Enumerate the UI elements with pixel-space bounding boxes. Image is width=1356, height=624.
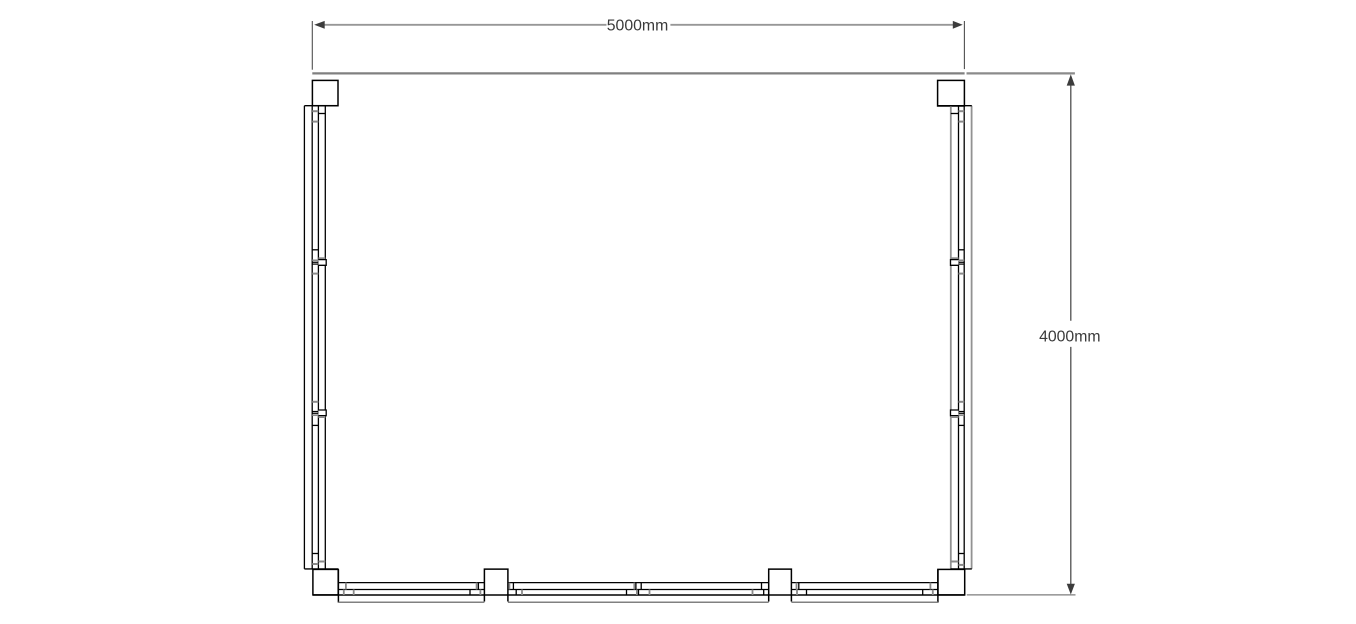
svg-text:5000mm: 5000mm	[607, 18, 668, 35]
svg-text:4000mm: 4000mm	[1039, 329, 1100, 346]
